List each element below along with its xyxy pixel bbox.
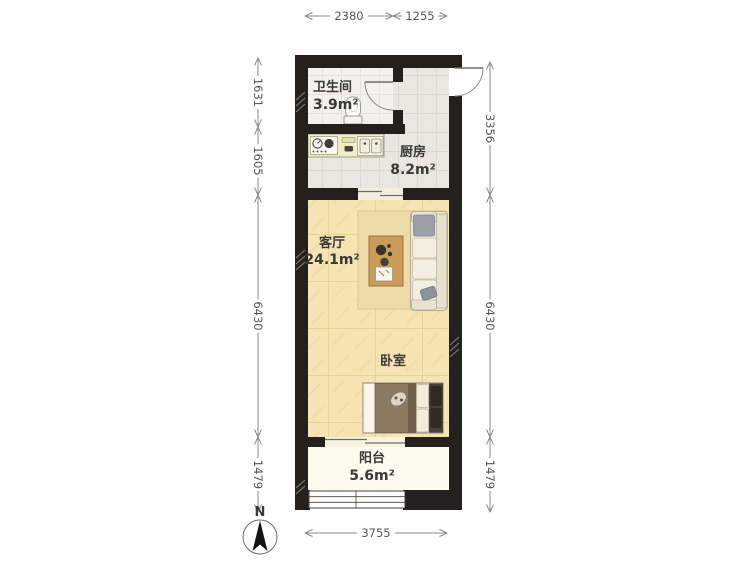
balcony-label: 阳台 xyxy=(359,450,385,466)
bathroom-area: 3.9m² xyxy=(313,97,359,113)
wall-bedroom-balcony-right xyxy=(405,437,462,447)
bed-pillow xyxy=(417,385,429,408)
dim-left-6430: 6430 xyxy=(251,195,265,437)
sofa xyxy=(411,212,448,311)
entrance-door-arc xyxy=(455,68,483,96)
wall-bathroom-right-lower xyxy=(393,110,403,134)
dim-left-1631: 1631 xyxy=(251,58,265,127)
wall-bottom-right xyxy=(403,490,462,510)
living-area: 24.1m² xyxy=(304,252,359,268)
bed xyxy=(363,383,443,433)
wall-kitchen-living-left xyxy=(295,188,358,200)
dim-value: 1631 xyxy=(251,78,265,107)
balcony-area: 5.6m² xyxy=(349,468,395,484)
entrance-door xyxy=(455,68,483,96)
dim-left-1479: 1479 xyxy=(251,437,265,512)
balcony-window xyxy=(309,491,405,508)
kitchen-area: 8.2m² xyxy=(390,162,436,178)
bed-pillow xyxy=(417,409,429,432)
dim-value: 1479 xyxy=(483,460,497,489)
coffee-table xyxy=(369,236,403,286)
wall-right xyxy=(449,96,462,510)
dim-value: 1255 xyxy=(405,9,434,23)
stove-icon xyxy=(311,137,338,155)
north-compass: N xyxy=(243,505,277,554)
dim-value: 1479 xyxy=(251,460,265,489)
dim-bottom-3755: 3755 xyxy=(305,526,447,540)
floor-plan-page: 卫生间 3.9m² 厨房 8.2m² 客厅 24.1m² 卧室 阳台 5.6m²… xyxy=(0,0,750,562)
teapot-icon xyxy=(376,245,386,255)
sofa-throw xyxy=(414,215,435,236)
north-arrow-icon xyxy=(253,521,268,552)
dim-value: 2380 xyxy=(334,9,363,23)
dim-value: 3755 xyxy=(361,526,390,540)
dim-value: 6430 xyxy=(483,301,497,330)
dim-value: 1605 xyxy=(251,146,265,175)
bedroom-balcony-threshold xyxy=(325,437,405,447)
kitchen-label: 厨房 xyxy=(400,144,426,160)
kitchen-living-threshold xyxy=(358,188,403,200)
sink-icon xyxy=(358,137,384,156)
bedroom-label: 卧室 xyxy=(380,353,406,369)
wall-bathroom-bottom xyxy=(295,124,405,134)
dim-top-1255: 1255 xyxy=(393,9,447,23)
dim-value: 3356 xyxy=(483,114,497,143)
wall-top xyxy=(295,55,462,68)
dim-right-3356: 3356 xyxy=(483,62,497,195)
dim-value: 6430 xyxy=(251,301,265,330)
tray-icon xyxy=(376,267,393,281)
dim-right-1479: 1479 xyxy=(483,437,497,512)
sofa-backrest xyxy=(437,214,448,308)
wall-kitchen-living-right xyxy=(403,188,462,200)
wall-bathroom-right-upper xyxy=(393,68,403,82)
north-label: N xyxy=(255,505,266,520)
kitchen-counter xyxy=(308,134,384,157)
dim-top-2380: 2380 xyxy=(305,9,393,23)
living-label: 客厅 xyxy=(319,235,345,251)
dim-right-6430: 6430 xyxy=(483,195,497,437)
bathroom-label: 卫生间 xyxy=(313,79,352,95)
dim-left-1605: 1605 xyxy=(251,127,265,195)
bed-sheet xyxy=(364,384,376,433)
floor-plan-canvas: 卫生间 3.9m² 厨房 8.2m² 客厅 24.1m² 卧室 阳台 5.6m²… xyxy=(0,0,750,562)
wall-bedroom-balcony-left xyxy=(295,437,325,447)
